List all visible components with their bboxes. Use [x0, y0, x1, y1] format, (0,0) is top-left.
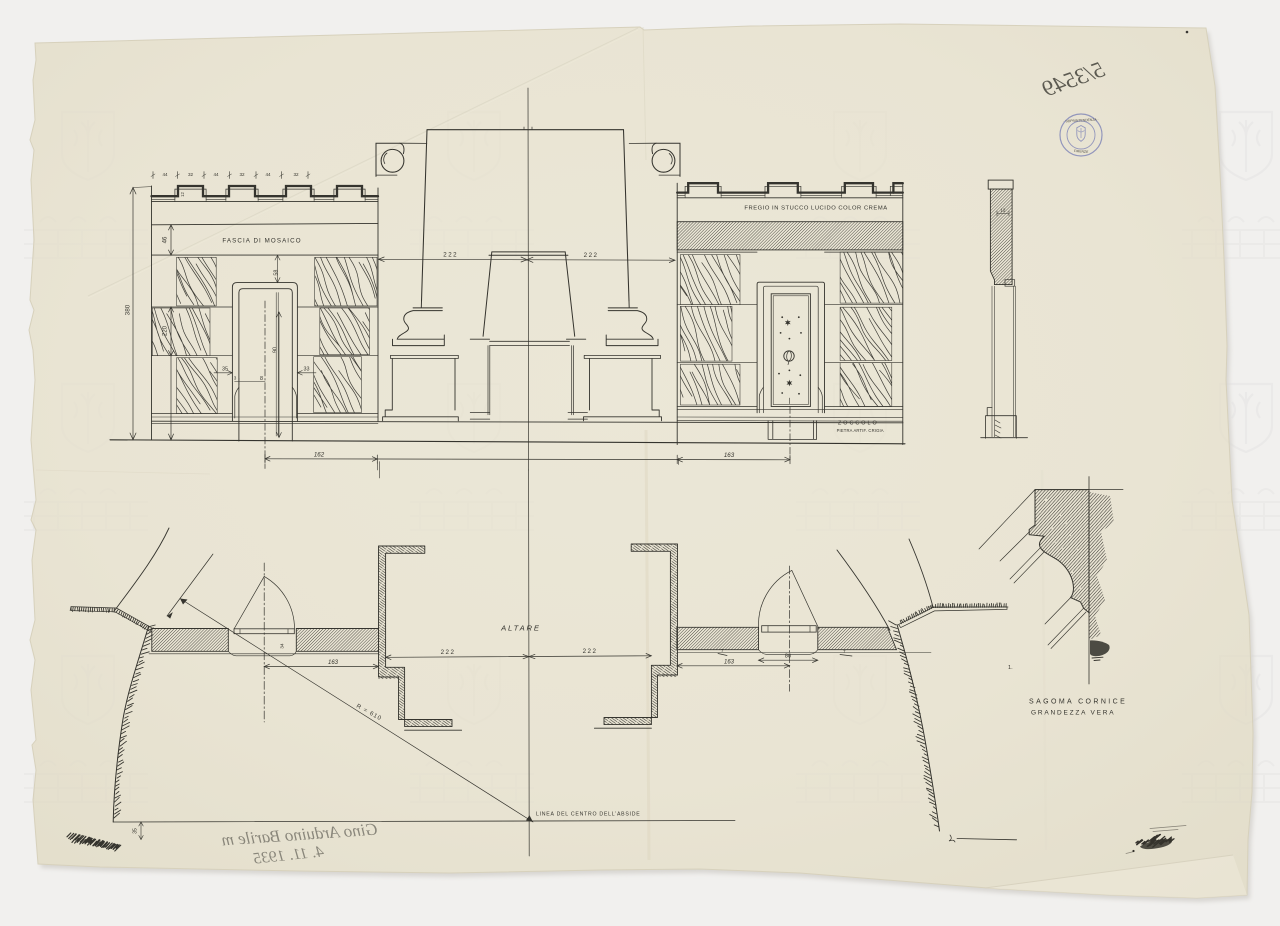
svg-text:12: 12	[1001, 208, 1006, 213]
svg-text:SAGOMA CORNICE: SAGOMA CORNICE	[1029, 699, 1127, 706]
svg-text:FASCIA DI MOSAICO: FASCIA DI MOSAICO	[222, 238, 301, 245]
svg-text:222: 222	[441, 649, 456, 656]
svg-text:44: 44	[213, 172, 219, 177]
svg-text:1.: 1.	[1008, 665, 1013, 671]
svg-text:163: 163	[328, 660, 339, 666]
svg-text:35: 35	[133, 828, 139, 834]
svg-text:44: 44	[162, 172, 168, 177]
svg-text:34: 34	[280, 643, 285, 649]
svg-text:3: 3	[234, 376, 237, 381]
svg-text:58: 58	[274, 270, 280, 276]
svg-text:7: 7	[721, 648, 724, 653]
svg-text:PIETRA ARTIF. CRIGIA: PIETRA ARTIF. CRIGIA	[837, 428, 884, 433]
svg-text:220: 220	[163, 325, 169, 336]
svg-text:222: 222	[443, 252, 458, 259]
svg-text:8: 8	[260, 376, 263, 382]
svg-text:32: 32	[239, 172, 245, 177]
svg-text:80: 80	[785, 653, 791, 659]
svg-text:7: 7	[843, 649, 846, 654]
svg-text:222: 222	[584, 252, 599, 259]
svg-text:ALTARE: ALTARE	[500, 624, 541, 633]
svg-text:FREGIO IN STUCCO LUCIDO COLOR: FREGIO IN STUCCO LUCIDO COLOR CREMA	[744, 206, 887, 212]
svg-text:44: 44	[265, 172, 271, 177]
svg-text:90: 90	[273, 347, 279, 353]
svg-text:163: 163	[724, 452, 735, 459]
svg-text:380: 380	[125, 304, 132, 315]
svg-text:32: 32	[188, 172, 194, 177]
svg-text:LINEA DEL CENTRO DELL’ABSIDE: LINEA DEL CENTRO DELL’ABSIDE	[536, 812, 640, 818]
svg-text:GRANDEZZA VERA: GRANDEZZA VERA	[1031, 710, 1115, 717]
svg-text:35: 35	[222, 367, 228, 373]
svg-text:ZOCCOLO: ZOCCOLO	[838, 421, 879, 427]
svg-text:222: 222	[583, 648, 598, 655]
svg-text:33: 33	[304, 367, 310, 373]
svg-text:46: 46	[163, 236, 169, 243]
svg-text:12: 12	[180, 192, 185, 197]
svg-text:163: 163	[724, 659, 735, 665]
svg-text:162: 162	[314, 451, 325, 458]
svg-text:32: 32	[293, 172, 299, 177]
